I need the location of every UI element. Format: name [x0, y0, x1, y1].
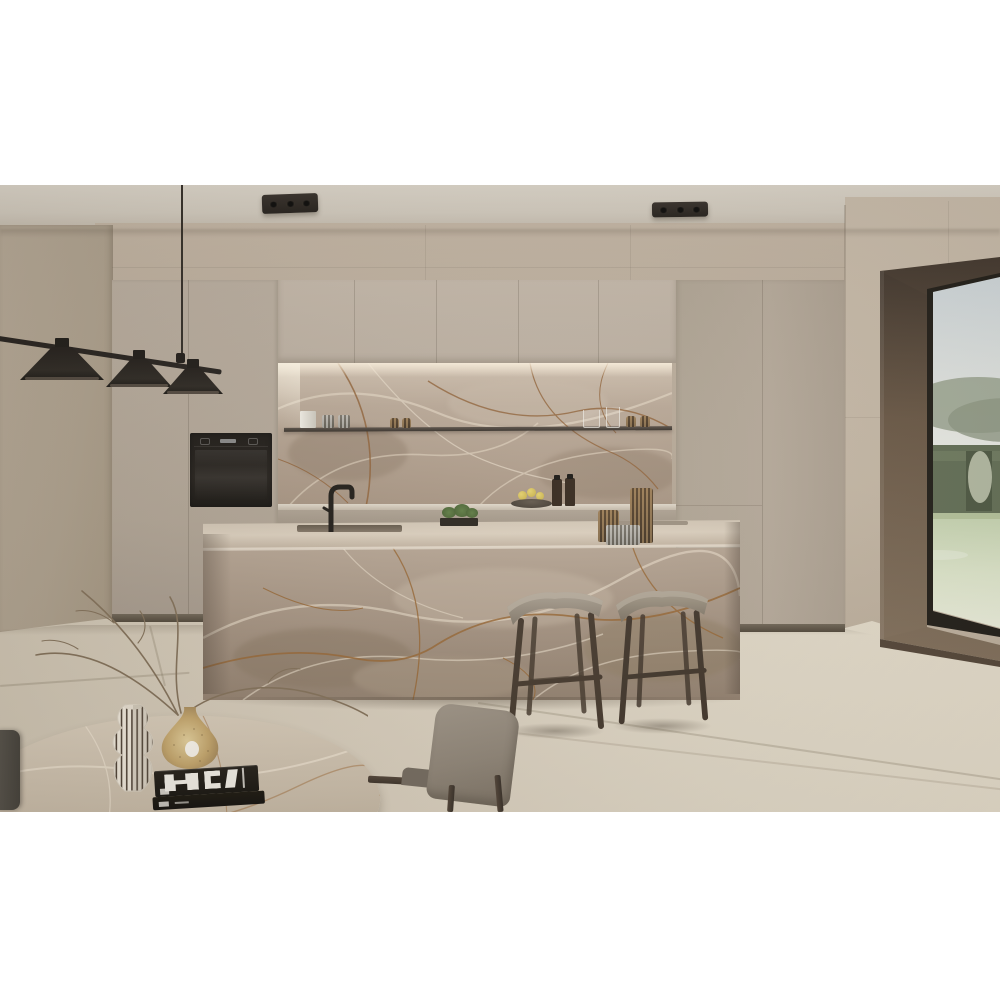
spotlight-lens — [659, 207, 668, 213]
shade-rim — [25, 377, 99, 380]
ceiling-light — [652, 202, 708, 218]
steel-cup — [322, 415, 334, 428]
tree — [968, 451, 992, 503]
built-in-oven — [190, 433, 272, 507]
bar-stool — [505, 585, 605, 735]
cover-spine-line — [242, 768, 245, 788]
spotlight-lens — [675, 206, 684, 212]
wall-panel-seam — [112, 267, 845, 268]
corner-window — [868, 255, 1000, 667]
spine-text-line — [175, 801, 189, 804]
under-cabinet-light-glow — [278, 363, 672, 377]
chair-backrest — [425, 702, 520, 808]
cabinet-door-seam — [188, 280, 189, 622]
shade-rim — [167, 391, 220, 394]
wall-panel-seam — [425, 225, 426, 280]
cabinet-door-seam — [762, 280, 763, 632]
coffee-table-books — [151, 765, 265, 812]
pendant-cap — [133, 350, 145, 360]
island-waterfall-right — [724, 522, 740, 694]
kitchen-photo — [0, 185, 1000, 812]
left-wall — [0, 225, 113, 635]
wall-panel-seam — [630, 225, 631, 280]
cabinet-door-seam — [436, 280, 437, 363]
bottle — [552, 479, 562, 506]
niche-light-wedge — [278, 363, 300, 429]
steel-cup — [338, 415, 350, 428]
amber-glass — [640, 416, 650, 427]
small-glass — [402, 418, 411, 428]
ribbed-vessel — [606, 525, 640, 545]
bottle-cap — [554, 475, 560, 480]
pendant-cap — [187, 359, 199, 369]
plant — [466, 508, 478, 518]
bar-stool — [614, 583, 710, 729]
foreground-chair-edge — [0, 730, 20, 810]
cover-logo — [160, 788, 169, 795]
spine-logo — [159, 801, 169, 807]
oven-knob-icon — [248, 438, 258, 445]
cabinet-door-seam — [598, 280, 599, 363]
cabinet-door-seam — [354, 280, 355, 363]
planter-tray — [440, 518, 478, 526]
spotlight-lens — [692, 206, 701, 212]
amber-glass — [626, 416, 636, 427]
cover-glyph — [225, 769, 238, 788]
bottle — [565, 478, 575, 506]
cover-glyph — [164, 773, 199, 792]
oven-knob-icon — [200, 438, 210, 445]
oven-door-glass — [195, 450, 267, 500]
screenshot — [0, 0, 1000, 1000]
cabinet-door-seam — [676, 505, 762, 506]
spotlight-lens — [285, 200, 294, 206]
ceiling-light — [262, 193, 319, 214]
ceiling-wall-junction — [0, 229, 1000, 237]
pendant-cable — [181, 185, 183, 359]
glass-bottle — [606, 407, 620, 428]
pendant-connector — [176, 353, 185, 363]
spotlight-lens — [269, 201, 278, 207]
fruit-bowl — [511, 499, 552, 508]
oven-display — [220, 439, 236, 443]
gold-vase — [150, 705, 230, 773]
shade-rim — [110, 384, 168, 387]
lemon — [527, 488, 536, 497]
upper-cabinets — [278, 280, 676, 363]
cover-glyph — [204, 770, 221, 789]
glass-carafe — [583, 410, 600, 428]
cabinet-door-seam — [518, 280, 519, 363]
bottle-cap — [567, 474, 573, 479]
spotlight-lens — [302, 200, 311, 206]
faucet — [322, 482, 356, 532]
dry-branches — [18, 583, 368, 718]
small-glass — [390, 418, 399, 428]
canister — [300, 411, 316, 428]
